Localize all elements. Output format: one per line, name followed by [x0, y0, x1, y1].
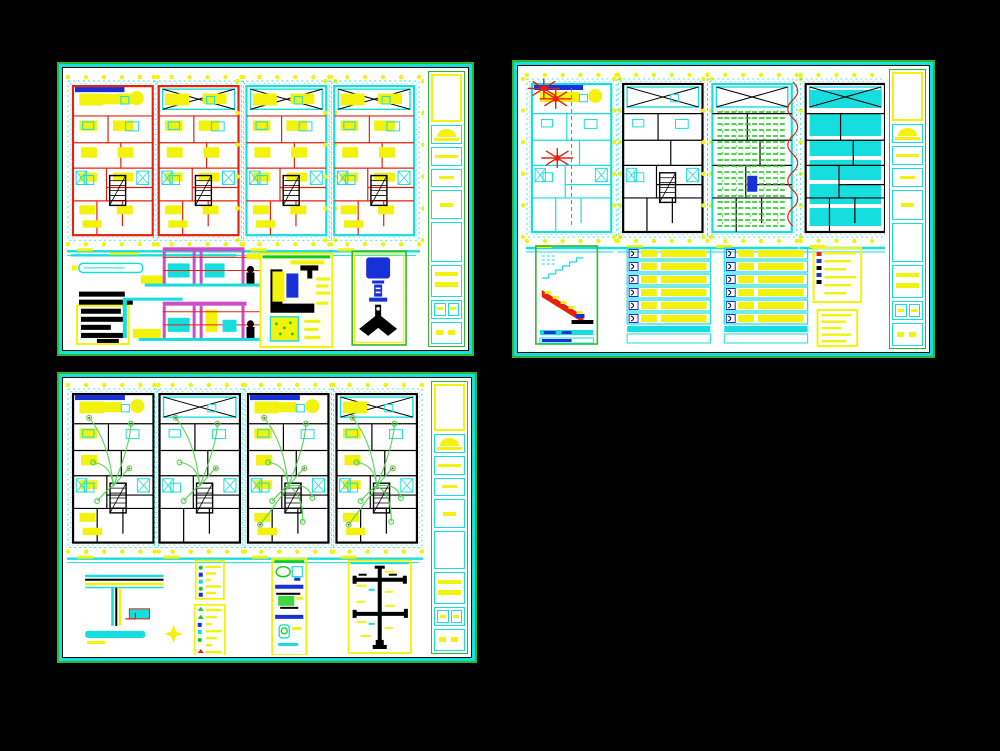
title-block-cell — [431, 147, 462, 166]
title-block-cell — [892, 323, 923, 346]
ground-line — [71, 252, 237, 255]
plans-layer — [66, 383, 424, 563]
title-text-bar — [435, 282, 458, 287]
title-block-cell — [434, 478, 465, 497]
title-text-bar — [439, 176, 454, 179]
title-block — [431, 381, 468, 654]
title-block-cell — [434, 629, 465, 651]
electrical-plan-4 — [329, 383, 424, 563]
floor-plan-3 — [235, 75, 337, 255]
title-block-cell — [431, 190, 462, 219]
sheet-number-mark — [897, 332, 904, 337]
title-block-cell — [434, 384, 465, 431]
sheet-number-mark — [439, 637, 446, 642]
title-block-cell — [434, 572, 465, 604]
sheet-number-mark — [451, 637, 458, 642]
revision-cells — [437, 610, 462, 623]
title-block-cell — [431, 300, 462, 319]
drawing-sheet-1[interactable] — [57, 62, 474, 356]
title-text-bar — [435, 272, 458, 276]
title-block-cell — [434, 607, 465, 626]
logo-mark — [898, 128, 917, 136]
door-window-schedule-a — [627, 248, 710, 343]
title-block-cell — [434, 531, 465, 570]
title-rule — [895, 137, 919, 140]
title-block-cell — [892, 190, 923, 219]
cad-model-space: { "page": { "background": "#000000", "de… — [0, 0, 1000, 751]
sheet-2-paper — [517, 65, 930, 353]
title-text-bar — [438, 580, 461, 584]
sheet-number-mark — [436, 330, 443, 335]
sheet-1-paper — [62, 67, 469, 351]
floor-plan-4 — [323, 75, 424, 255]
electrical-plan-2 — [152, 383, 247, 563]
title-text-bar — [443, 512, 456, 516]
title-text-bar — [896, 154, 918, 157]
title-text-bar — [438, 464, 460, 467]
general-notes-b — [818, 310, 858, 346]
stair-section-detail — [536, 246, 597, 344]
sheet-3-paper — [62, 377, 472, 658]
title-rule — [434, 138, 458, 141]
walls-plan — [612, 73, 714, 252]
roof-finial-detail — [352, 251, 406, 345]
title-block-cell — [434, 434, 465, 453]
title-block-cell — [892, 223, 923, 263]
sheet-number-mark — [448, 330, 455, 335]
title-text-bar — [896, 283, 919, 288]
revision-cells — [434, 303, 459, 316]
title-block-cell — [431, 169, 462, 188]
title-block-cell — [434, 456, 465, 475]
title-block-cell — [431, 125, 462, 144]
floor-plan-1 — [66, 75, 160, 255]
title-block-cell — [431, 74, 462, 122]
title-block-cell — [892, 146, 923, 165]
title-block-cell — [892, 168, 923, 187]
rear-elevation — [123, 298, 271, 341]
symbol-legend-a — [196, 561, 224, 599]
wall-section-detail — [260, 253, 332, 347]
electrical-plan-1 — [66, 383, 161, 563]
title-text-bar — [901, 203, 914, 207]
title-text-bar — [900, 176, 915, 179]
sheet-3-drawing-area — [65, 380, 427, 655]
title-block-cell — [892, 124, 923, 143]
electrical-riser-diagram — [349, 561, 411, 653]
title-block-cell — [892, 265, 923, 298]
general-notes-a — [814, 248, 862, 302]
services-plan — [521, 73, 623, 252]
ceiling-finish-plan — [788, 73, 885, 252]
title-block-cell — [431, 322, 462, 344]
title-text-bar — [438, 590, 461, 595]
title-text-bar — [896, 273, 919, 277]
title-block-cell — [431, 222, 462, 261]
title-text-bar — [442, 485, 457, 488]
logo-mark — [437, 129, 456, 137]
logo-mark — [440, 438, 459, 446]
plans-layer — [66, 75, 424, 255]
sheet-number-mark — [909, 332, 916, 337]
title-block — [889, 69, 926, 349]
joist-framing-plan — [701, 73, 803, 252]
title-block — [428, 71, 465, 347]
beam-detail — [72, 263, 143, 272]
floor-plan-2 — [152, 75, 246, 255]
title-block-cell — [431, 265, 462, 297]
revision-cells — [895, 304, 920, 317]
drawing-sheet-3[interactable] — [57, 372, 477, 663]
door-window-schedule-b — [724, 248, 807, 343]
drawing-sheet-2[interactable] — [512, 60, 935, 358]
electrical-plan-3 — [241, 383, 336, 563]
title-block-cell — [892, 301, 923, 320]
title-block-cell — [892, 72, 923, 121]
sheet-1-drawing-area — [65, 70, 424, 348]
title-text-bar — [440, 203, 453, 207]
plumbing-fixtures-detail — [272, 559, 306, 655]
sheet-2-drawing-area — [520, 68, 885, 350]
title-text-bar — [435, 155, 457, 158]
title-rule — [437, 447, 461, 450]
symbol-legend-b — [195, 605, 225, 655]
plans-layer — [521, 73, 885, 252]
roof-edge-section-detail — [85, 575, 183, 644]
front-elevation — [141, 247, 269, 286]
title-block-cell — [434, 499, 465, 528]
